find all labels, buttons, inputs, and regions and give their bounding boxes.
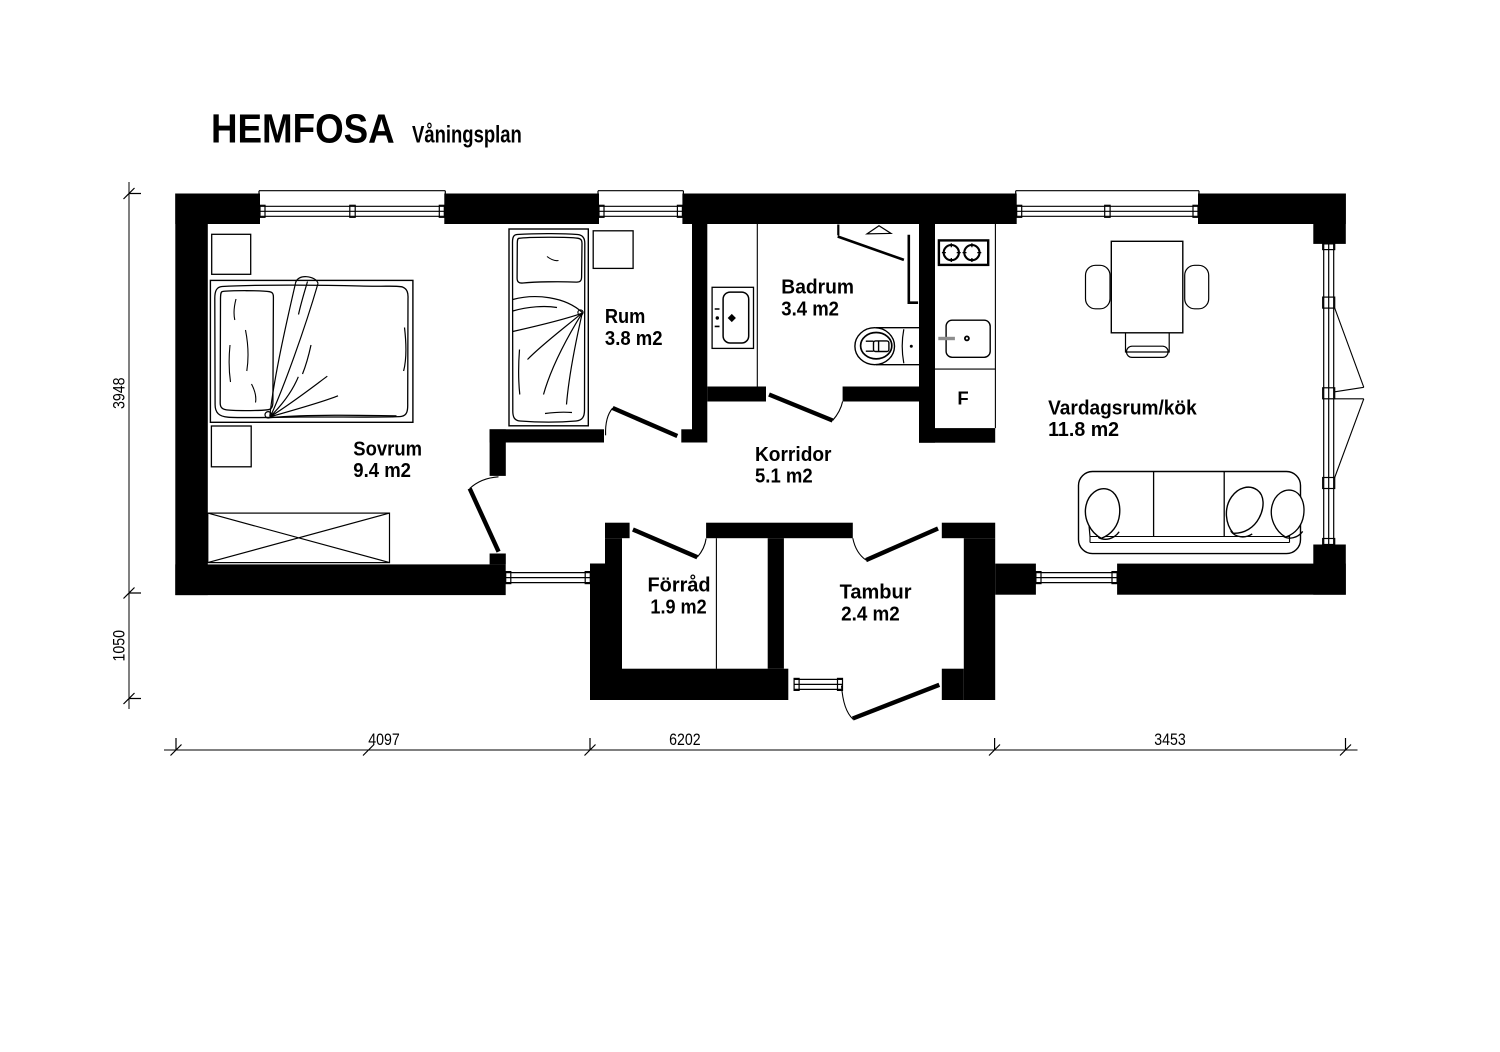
svg-text:Tambur: Tambur (840, 580, 912, 603)
svg-text:F: F (957, 388, 968, 409)
svg-text:Korridor: Korridor (755, 443, 832, 466)
svg-text:3453: 3453 (1154, 730, 1186, 749)
svg-text:Rum: Rum (605, 305, 646, 328)
svg-text:9.4 m2: 9.4 m2 (353, 459, 411, 482)
svg-text:2.4 m2: 2.4 m2 (841, 602, 900, 625)
svg-text:3.8 m2: 3.8 m2 (605, 327, 663, 350)
svg-text:4097: 4097 (368, 730, 400, 749)
svg-text:Våningsplan: Våningsplan (412, 121, 522, 148)
svg-text:3948: 3948 (110, 378, 129, 410)
svg-text:Badrum: Badrum (781, 276, 854, 299)
svg-text:1.9 m2: 1.9 m2 (650, 595, 706, 618)
svg-text:Vardagsrum/kök: Vardagsrum/kök (1048, 396, 1197, 419)
svg-text:Förråd: Förråd (648, 573, 711, 596)
svg-text:Sovrum: Sovrum (353, 437, 422, 460)
svg-text:3.4 m2: 3.4 m2 (781, 298, 839, 321)
svg-text:HEMFOSA: HEMFOSA (211, 105, 395, 151)
svg-text:5.1 m2: 5.1 m2 (755, 465, 813, 488)
svg-text:6202: 6202 (669, 730, 701, 749)
svg-text:11.8 m2: 11.8 m2 (1048, 418, 1119, 441)
svg-text:1050: 1050 (110, 630, 129, 662)
